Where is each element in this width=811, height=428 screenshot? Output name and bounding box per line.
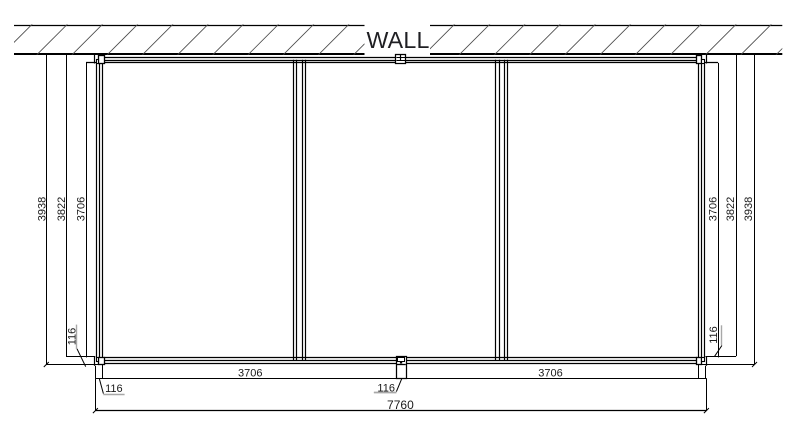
- svg-text:3706: 3706: [538, 367, 562, 379]
- svg-text:3822: 3822: [56, 197, 68, 221]
- svg-text:3938: 3938: [36, 197, 48, 221]
- svg-text:116: 116: [67, 328, 79, 346]
- svg-text:3822: 3822: [725, 197, 737, 221]
- svg-text:116: 116: [377, 383, 395, 395]
- svg-text:116: 116: [708, 326, 720, 344]
- svg-text:3706: 3706: [238, 367, 262, 379]
- svg-text:WALL: WALL: [366, 27, 429, 53]
- svg-text:7760: 7760: [387, 398, 414, 412]
- svg-text:3938: 3938: [743, 197, 755, 221]
- svg-text:3706: 3706: [76, 197, 88, 221]
- svg-text:3706: 3706: [707, 197, 719, 221]
- svg-text:116: 116: [105, 383, 123, 395]
